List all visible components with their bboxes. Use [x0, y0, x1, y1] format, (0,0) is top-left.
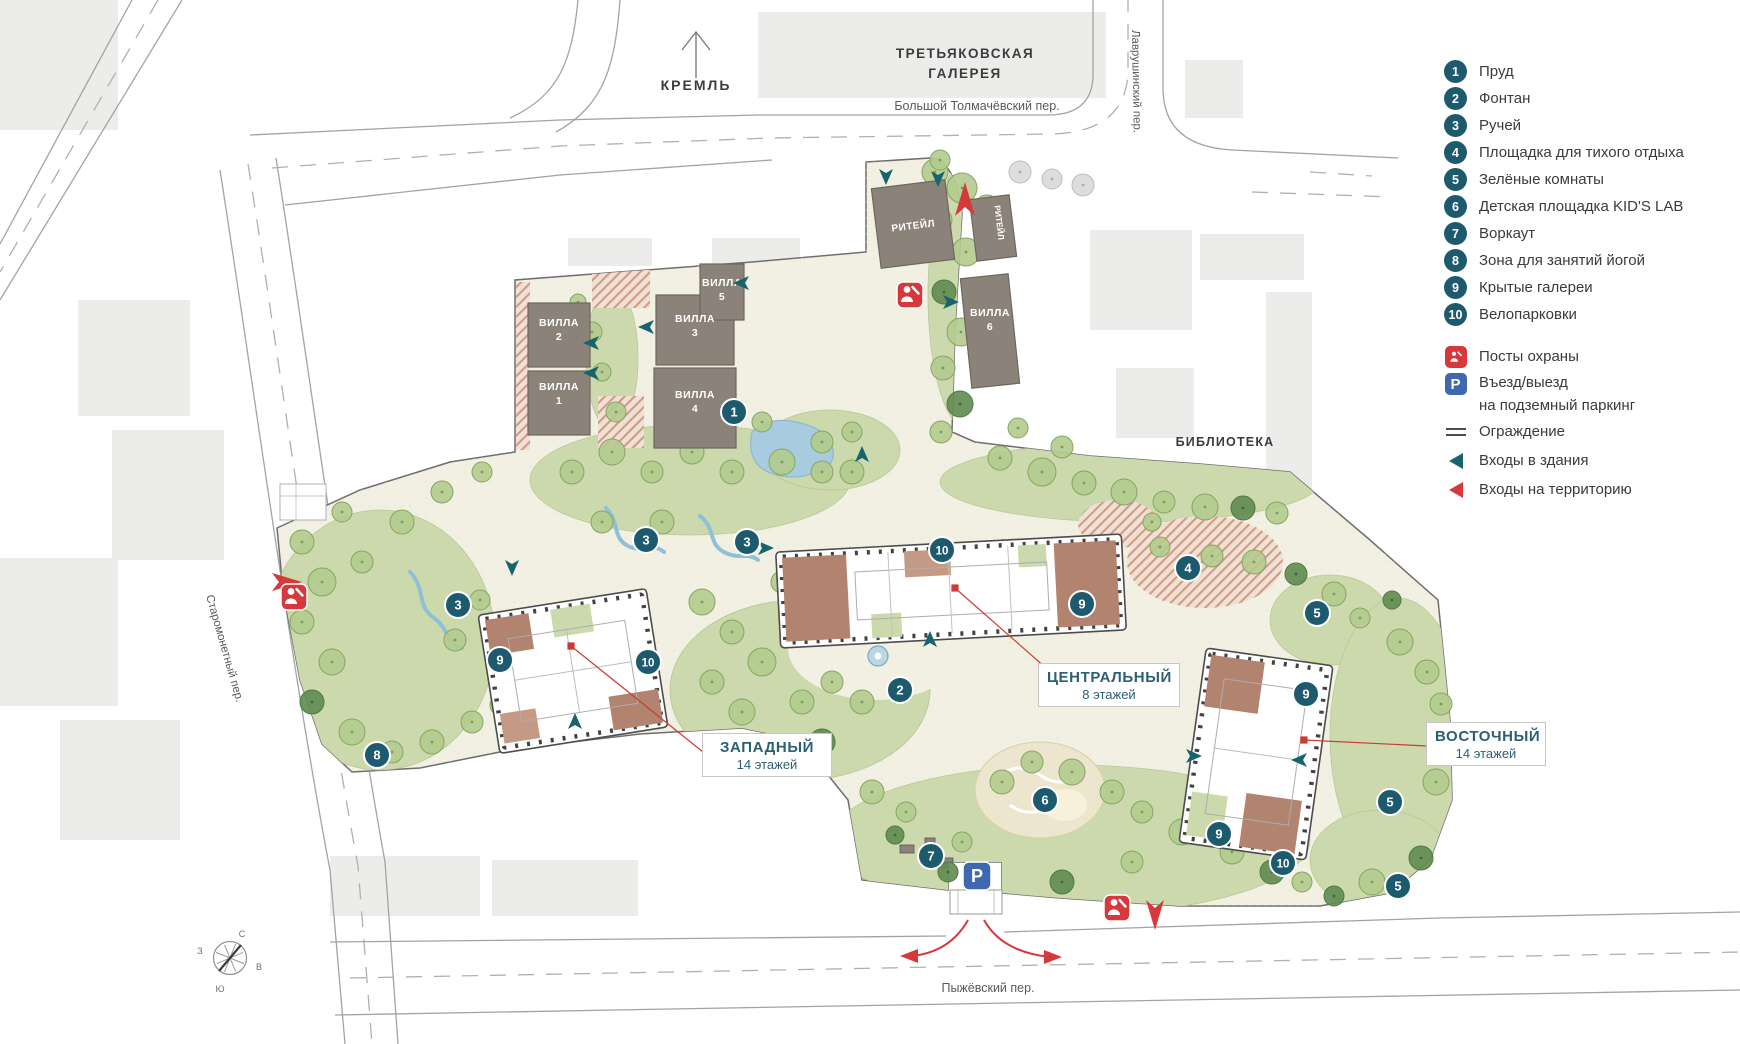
legend-item-5: 5Зелёные комнаты — [1444, 166, 1740, 193]
legend-item-parking: P Въезд/выезд на подземный паркинг — [1444, 371, 1740, 417]
map-marker-9: 9 — [1293, 681, 1319, 707]
svg-text:2: 2 — [896, 683, 903, 698]
building-entry-arrow-icon — [1449, 453, 1463, 469]
legend-label: Ограждение — [1479, 423, 1565, 440]
legend-item-9: 9Крытые галереи — [1444, 274, 1740, 301]
legend-label: Воркаут — [1479, 225, 1535, 242]
legend-item-security: Посты охраны — [1444, 342, 1740, 371]
legend-number-badge: 9 — [1444, 276, 1467, 299]
map-marker-6: 6 — [1032, 787, 1058, 813]
legend: 1Пруд2Фонтан3Ручей4Площадка для тихого о… — [1444, 58, 1740, 504]
map-marker-10: 10 — [1270, 850, 1296, 876]
compass-south: Ю — [215, 984, 224, 994]
legend-label: Ручей — [1479, 117, 1521, 134]
legend-number-badge: 5 — [1444, 168, 1467, 191]
legend-item-6: 6Детская площадка KID'S LAB — [1444, 193, 1740, 220]
legend-label: Зона для занятий йогой — [1479, 252, 1645, 269]
map-marker-5: 5 — [1304, 600, 1330, 626]
legend-item-3: 3Ручей — [1444, 112, 1740, 139]
svg-text:9: 9 — [1302, 687, 1309, 702]
compass-west: З — [197, 946, 202, 956]
parking-ramp — [950, 890, 1002, 914]
map-marker-9: 9 — [1069, 591, 1095, 617]
legend-item-1: 1Пруд — [1444, 58, 1740, 85]
map-marker-5: 5 — [1385, 873, 1411, 899]
svg-text:5: 5 — [1386, 795, 1393, 810]
street-tolmachevsky: Большой Толмачёвский пер. — [894, 99, 1059, 113]
svg-text:4: 4 — [1184, 561, 1192, 576]
svg-text:5: 5 — [1394, 879, 1401, 894]
security-post-icon — [1104, 895, 1130, 921]
building-name: ЦЕНТРАЛЬНЫЙ — [1047, 669, 1171, 686]
map-marker-5: 5 — [1377, 789, 1403, 815]
svg-text:6: 6 — [1041, 793, 1048, 808]
map-marker-3: 3 — [633, 527, 659, 553]
svg-text:3: 3 — [642, 533, 649, 548]
svg-text:10: 10 — [642, 658, 655, 670]
callout-central-building: ЦЕНТРАЛЬНЫЙ 8 этажей — [1038, 663, 1180, 707]
svg-text:10: 10 — [1277, 859, 1290, 871]
library-label: БИБЛИОТЕКА — [1176, 435, 1275, 449]
legend-items: 1Пруд2Фонтан3Ручей4Площадка для тихого о… — [1444, 58, 1740, 328]
legend-item-building-entries: Входы в здания — [1444, 446, 1740, 475]
legend-item-territory-entries: Входы на территорию — [1444, 475, 1740, 504]
legend-label: Велопарковки — [1479, 306, 1577, 323]
legend-label: Пруд — [1479, 63, 1514, 80]
fountain — [868, 646, 888, 666]
map-marker-9: 9 — [487, 647, 513, 673]
legend-number-badge: 3 — [1444, 114, 1467, 137]
callout-east-building: ВОСТОЧНЫЙ 14 этажей — [1426, 722, 1546, 766]
map-marker-2: 2 — [887, 677, 913, 703]
building-east — [1179, 648, 1333, 860]
legend-item-2: 2Фонтан — [1444, 85, 1740, 112]
map-marker-10: 10 — [929, 537, 955, 563]
map-marker-4: 4 — [1175, 555, 1201, 581]
legend-label: Площадка для тихого отдыха — [1479, 144, 1684, 161]
gallery-label: ТРЕТЬЯКОВСКАЯ — [896, 46, 1034, 61]
security-post-icon — [897, 282, 923, 308]
legend-number-badge: 6 — [1444, 195, 1467, 218]
map-marker-1: 1 — [721, 399, 747, 425]
building-name: ВОСТОЧНЫЙ — [1435, 728, 1537, 745]
map-marker-3: 3 — [734, 529, 760, 555]
legend-label: Входы на территорию — [1479, 481, 1632, 498]
svg-text:3: 3 — [743, 535, 750, 550]
map-marker-7: 7 — [918, 843, 944, 869]
legend-item-4: 4Площадка для тихого отдыха — [1444, 139, 1740, 166]
legend-item-7: 7Воркаут — [1444, 220, 1740, 247]
legend-label: Крытые галереи — [1479, 279, 1593, 296]
building-floors: 14 этажей — [711, 757, 823, 772]
building-floors: 14 этажей — [1435, 746, 1537, 761]
legend-number-badge: 2 — [1444, 87, 1467, 110]
street-pyzhevsky: Пыжёвский пер. — [941, 981, 1034, 995]
callout-west-building: ЗАПАДНЫЙ 14 этажей — [702, 733, 832, 777]
kremlin-arrow-icon — [682, 32, 710, 78]
legend-number-badge: 4 — [1444, 141, 1467, 164]
territory-entry-arrow-icon — [1449, 482, 1463, 498]
map-marker-9: 9 — [1206, 821, 1232, 847]
legend-number-badge: 8 — [1444, 249, 1467, 272]
svg-text:3: 3 — [454, 598, 461, 613]
kremlin-label: КРЕМЛЬ — [661, 77, 732, 93]
legend-label: Посты охраны — [1479, 348, 1579, 365]
street-staromonetny: Старомонетный пер. — [203, 594, 245, 704]
legend-label: Входы в здания — [1479, 452, 1588, 469]
security-post-icon — [1445, 346, 1467, 368]
legend-label: Детская площадка KID'S LAB — [1479, 198, 1683, 215]
retail-block-small — [969, 195, 1016, 261]
compass-north: С — [239, 929, 246, 939]
legend-label: на подземный паркинг — [1479, 395, 1635, 417]
building-name: ЗАПАДНЫЙ — [711, 739, 823, 756]
fence-icon — [1446, 428, 1466, 436]
svg-text:1: 1 — [730, 405, 737, 420]
svg-text:9: 9 — [496, 653, 503, 668]
library-building — [1090, 230, 1192, 330]
map-marker-3: 3 — [445, 592, 471, 618]
map-marker-8: 8 — [364, 742, 390, 768]
security-post-icon — [281, 584, 307, 610]
parking-entrance-icon: P — [1445, 373, 1467, 395]
svg-text:8: 8 — [373, 748, 380, 763]
legend-number-badge: 10 — [1444, 303, 1467, 326]
library-building — [1116, 368, 1194, 438]
legend-number-badge: 7 — [1444, 222, 1467, 245]
legend-label: Зелёные комнаты — [1479, 171, 1604, 188]
svg-text:5: 5 — [1313, 606, 1320, 621]
gallery-label: ГАЛЕРЕЯ — [928, 66, 1001, 81]
svg-text:9: 9 — [1078, 597, 1085, 612]
parking-flow-arrows — [900, 920, 1062, 964]
parking-entrance-icon — [963, 862, 991, 890]
svg-text:9: 9 — [1215, 827, 1222, 842]
compass-rose: С В Ю З — [197, 929, 262, 994]
street-lavrushinsky: Лаврушинский пер. — [1129, 30, 1143, 133]
building-floors: 8 этажей — [1047, 687, 1171, 702]
svg-text:10: 10 — [936, 546, 949, 558]
legend-item-fence: Ограждение — [1444, 417, 1740, 446]
legend-label: Фонтан — [1479, 90, 1530, 107]
legend-item-10: 10Велопарковки — [1444, 301, 1740, 328]
library-building — [1200, 234, 1304, 280]
svg-text:7: 7 — [927, 849, 934, 864]
site-plan: P — [0, 0, 1740, 1044]
utility-structure — [280, 484, 326, 520]
legend-number-badge: 1 — [1444, 60, 1467, 83]
map-marker-10: 10 — [635, 649, 661, 675]
legend-item-8: 8Зона для занятий йогой — [1444, 247, 1740, 274]
compass-east: В — [256, 962, 262, 972]
legend-label: Въезд/выезд — [1479, 371, 1635, 395]
